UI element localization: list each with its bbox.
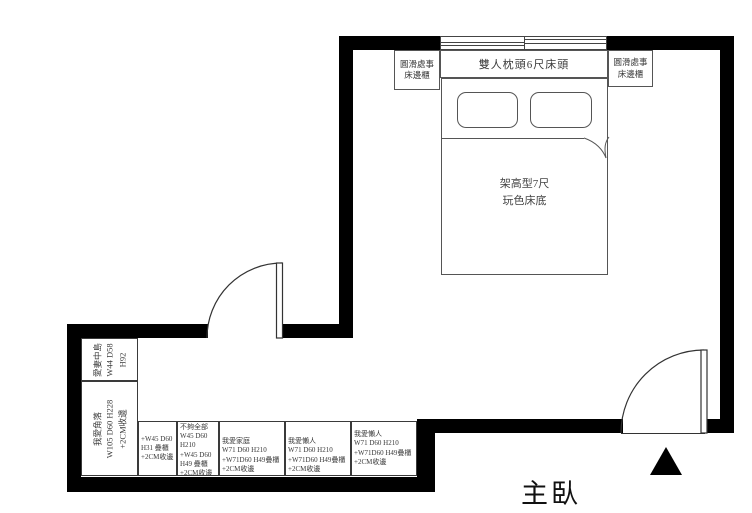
bed-headboard: 雙人枕頭6尺床頭	[440, 50, 608, 78]
door-left-leaf	[277, 263, 283, 338]
bed-base-label-line2: 玩色床底	[441, 193, 608, 210]
nightstand-left: 圓滑處事 床邊櫃	[394, 50, 440, 90]
wall-upper-left	[339, 36, 353, 338]
bed-base-label: 架高型7尺 玩色床底	[441, 176, 608, 209]
nightstand-left-label-line2: 床邊櫃	[404, 70, 430, 81]
room-title: 主臥	[521, 472, 581, 511]
closet-corner-unit: 我愛角落 W105 D60 H228 +2CM收邊	[81, 381, 138, 476]
wall-right	[720, 36, 734, 419]
bed-headboard-label: 雙人枕頭6尺床頭	[479, 56, 570, 72]
bed-base-label-line1: 架高型7尺	[441, 176, 608, 193]
closet-cell-1: +W45 D60 H31 疊櫃 +2CM收邊	[138, 421, 177, 476]
wall-lower-left-b	[283, 324, 353, 338]
closet-cell-4: 我愛懶人 W71 D60 H210 +W71D60 H49疊櫃 +2CM收邊	[285, 421, 351, 476]
closet-island-label: 愛妻中島 W44 D58 H92	[91, 342, 128, 376]
window	[440, 36, 607, 50]
closet-cell-3: 我愛家庭 W71 D60 H210 +W71D60 H49疊櫃 +2CM收邊	[219, 421, 285, 476]
wall-left	[67, 324, 81, 492]
entrance-triangle-marker	[650, 447, 682, 475]
window-pane-line	[525, 39, 607, 40]
nightstand-right-label-line1: 圓滑處事	[613, 57, 647, 68]
window-pane-line	[441, 45, 524, 46]
wall-bottom-right	[433, 419, 623, 433]
pillow-right	[530, 92, 592, 128]
door-entry-arc	[621, 350, 704, 433]
wall-right-corner-stub	[705, 419, 734, 433]
pillow-left	[457, 92, 518, 128]
nightstand-right: 圓滑處事 床邊櫃	[608, 50, 653, 87]
door-left-arc	[207, 263, 282, 338]
nightstand-right-label-line2: 床邊櫃	[618, 69, 644, 80]
closet-cell-5: 我愛懶人 W71 D60 H210 +W71D60 H49疊櫃 +2CM收邊	[351, 421, 417, 476]
closet-corner-label: 我愛角落 W105 D60 H228 +2CM收邊	[91, 399, 128, 458]
window-pane-line	[525, 43, 607, 44]
closet-island-unit: 愛妻中島 W44 D58 H92	[81, 338, 138, 381]
floor-plan: 雙人枕頭6尺床頭 架高型7尺 玩色床底 圓滑處事 床邊櫃 圓滑處事 床邊櫃 愛妻…	[0, 0, 752, 513]
closet-cell-2: 不夠全部 W45 D60 H210 +W45 D60 H49 疊櫃 +2CM收邊	[177, 421, 219, 476]
nightstand-left-label-line1: 圓滑處事	[400, 59, 434, 70]
window-pane-line	[441, 42, 524, 43]
wall-lower-left-a	[67, 324, 208, 338]
wall-bottom	[67, 477, 435, 492]
bed-sheet-line	[442, 138, 584, 139]
